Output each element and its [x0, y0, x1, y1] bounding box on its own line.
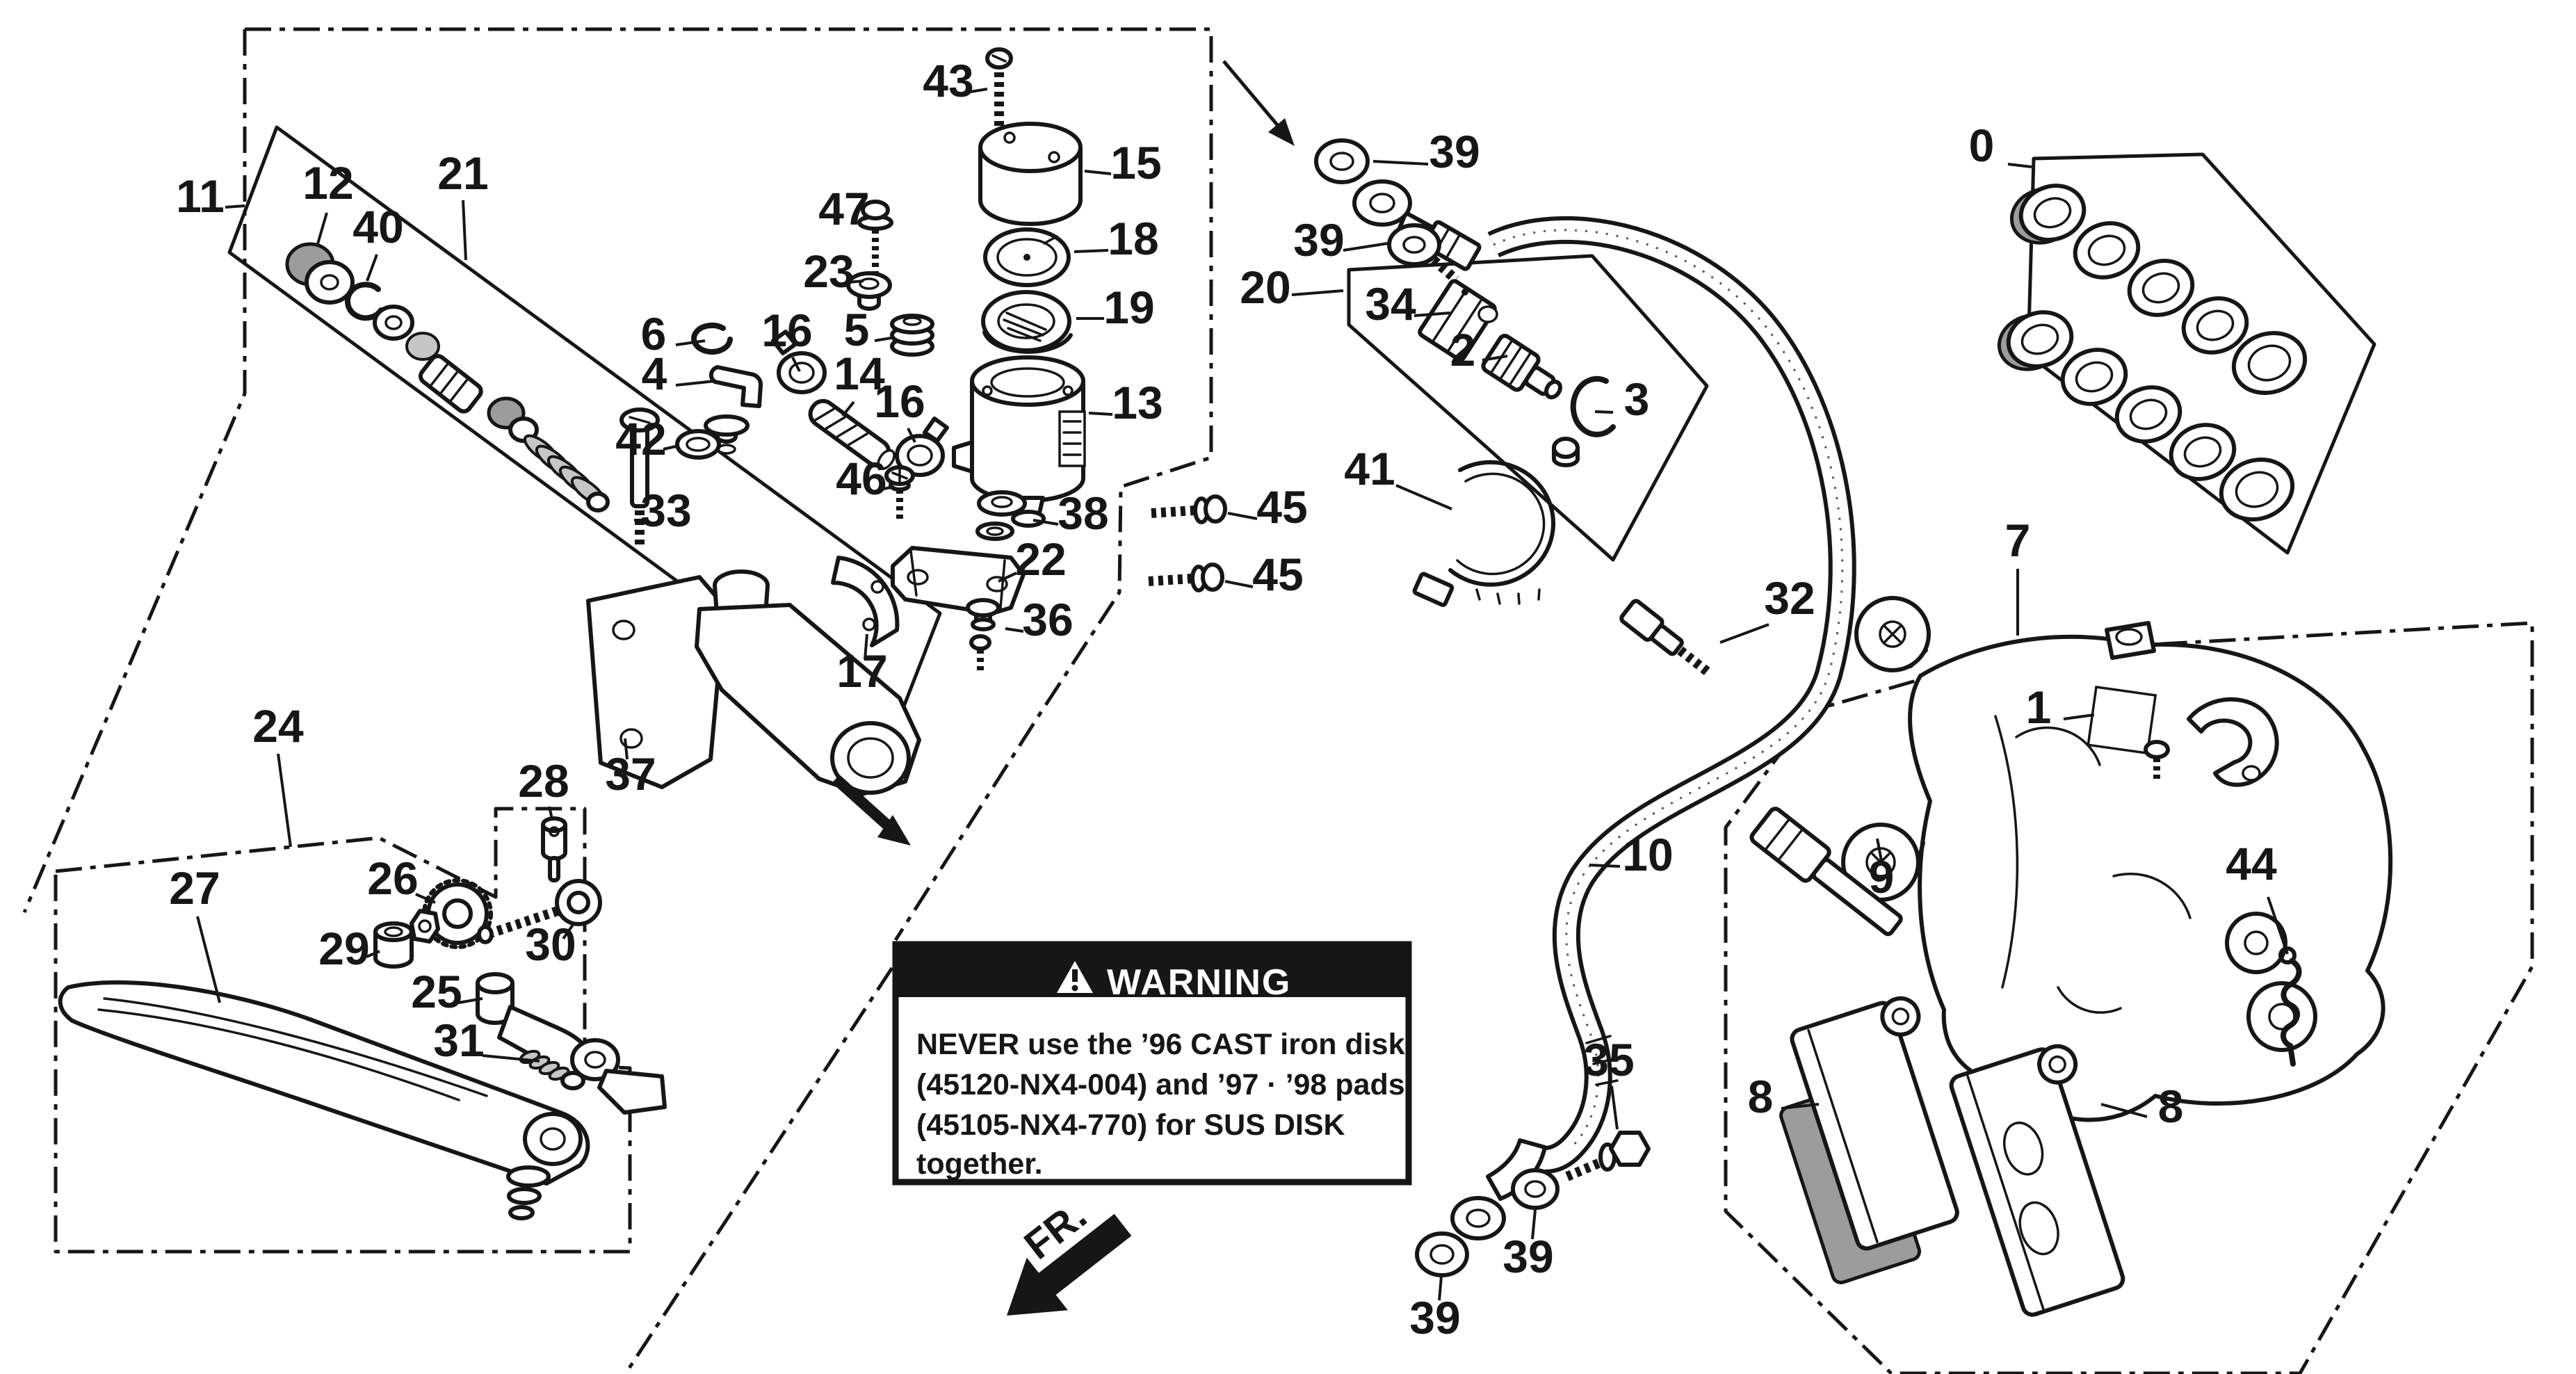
mount-grommet-36	[968, 600, 998, 670]
parts-diagram-page: WARNING NEVER use the ’96 CAST iron disk…	[0, 0, 2576, 1374]
master-piston	[418, 353, 484, 414]
part-label-47: 47	[818, 183, 869, 234]
reservoir-bracket-22	[893, 548, 1023, 613]
part-label-30: 30	[525, 919, 576, 970]
hose-pointer-line	[1224, 61, 1286, 136]
part-label-25: 25	[411, 966, 462, 1017]
seal-kit-0	[1992, 178, 2312, 528]
mount-bolt-45a	[1151, 496, 1225, 522]
part-label-1: 1	[2026, 681, 2052, 733]
leader-line-18	[1074, 250, 1108, 252]
half-clamp-17	[833, 558, 897, 645]
part-label-33: 33	[640, 485, 691, 536]
leader-line-6	[676, 341, 705, 345]
part-label-27: 27	[169, 862, 220, 914]
part-label-23: 23	[803, 245, 854, 297]
part-label-46: 46	[836, 453, 886, 504]
leader-line-3	[1595, 412, 1613, 412]
leader-line-45	[1225, 581, 1253, 587]
part-label-10: 10	[1622, 829, 1673, 880]
mount-bolt-32	[1620, 599, 1717, 682]
part-label-2: 2	[1450, 324, 1476, 375]
part-label-8: 8	[1748, 1071, 1774, 1122]
part-label-39: 39	[1409, 1292, 1460, 1343]
leader-line-32	[1720, 624, 1769, 642]
part-label-12: 12	[302, 157, 353, 209]
valve-cap-3	[1554, 379, 1613, 465]
boundary-diagonal-to-fr	[626, 968, 892, 1373]
part-label-6: 6	[641, 308, 667, 359]
part-label-22: 22	[1015, 533, 1066, 585]
part-label-19: 19	[1103, 282, 1154, 333]
part-label-3: 3	[1624, 373, 1650, 425]
part-label-37: 37	[605, 748, 656, 800]
leader-line-5	[875, 338, 891, 341]
leader-line-24	[278, 754, 291, 847]
leader-line-41	[1396, 485, 1452, 509]
part-label-20: 20	[1240, 261, 1290, 313]
part-label-38: 38	[1058, 487, 1108, 539]
warning-line-3: (45105-NX4-770) for SUS DISK	[916, 1108, 1345, 1142]
banjo-eye	[1354, 181, 1410, 225]
o-ring-42	[677, 431, 719, 458]
bleed-valve-2	[1481, 334, 1569, 410]
pushrod-28	[543, 818, 565, 880]
piston-kit-parts-21	[287, 244, 608, 510]
snap-ring-6	[694, 325, 730, 352]
leader-line-39	[1343, 243, 1388, 250]
warning-line-1: NEVER use the ’96 CAST iron disk	[916, 1028, 1405, 1061]
reservoir-cap-15	[980, 124, 1080, 224]
leader-line-20	[1292, 291, 1343, 295]
leader-line-13	[1089, 413, 1112, 414]
part-label-32: 32	[1764, 572, 1815, 624]
part-label-39: 39	[1429, 126, 1480, 177]
leader-line-11	[225, 206, 245, 207]
exploded-parts-diagram: WARNING NEVER use the ’96 CAST iron disk…	[0, 0, 2576, 1374]
part-label-45: 45	[1252, 549, 1303, 600]
part-label-36: 36	[1022, 594, 1073, 645]
hose-clamp-41	[1413, 462, 1553, 606]
part-label-18: 18	[1108, 213, 1158, 264]
bushing-5	[892, 316, 932, 355]
part-label-39: 39	[1293, 214, 1344, 266]
part-label-41: 41	[1344, 443, 1395, 494]
part-label-8: 8	[2158, 1081, 2184, 1132]
part-label-9: 9	[1869, 851, 1895, 903]
leader-line-10	[1589, 865, 1620, 866]
mount-bolt-45b	[1149, 565, 1222, 590]
leader-line-36	[1005, 629, 1023, 631]
part-label-15: 15	[1110, 137, 1161, 188]
master-cylinder-body-17	[588, 558, 919, 846]
leader-line-45	[1228, 513, 1257, 519]
oil-washer-39c	[1513, 1170, 1557, 1208]
reservoir-diaphragm-19	[983, 292, 1071, 352]
part-label-42: 42	[615, 413, 666, 464]
part-label-40: 40	[353, 201, 403, 252]
oil-washer-39b	[1389, 225, 1439, 264]
part-label-29: 29	[318, 923, 369, 974]
part-label-17: 17	[836, 645, 887, 697]
leader-line-40	[367, 254, 377, 281]
reservoir-set-plate-18	[985, 229, 1069, 285]
leader-line-14	[843, 402, 854, 416]
leader-line-39	[1373, 161, 1428, 164]
part-label-0: 0	[1969, 120, 1995, 171]
leader-line-12	[317, 213, 327, 246]
leader-line-15	[1085, 171, 1111, 174]
part-label-45: 45	[1256, 481, 1307, 533]
part-label-44: 44	[2226, 838, 2277, 889]
hose-pointer-arrowhead-icon	[1268, 118, 1295, 146]
oil-washer-39d	[1417, 1234, 1467, 1275]
leader-line-0	[2008, 164, 2032, 167]
banjo-eye-lower	[1452, 1198, 1504, 1238]
oil-washer-39a	[1316, 140, 1368, 182]
part-label-28: 28	[518, 755, 569, 807]
boundary-master-cylinder-left-11	[24, 29, 245, 912]
part-label-43: 43	[923, 55, 973, 106]
part-label-16: 16	[761, 305, 812, 356]
part-label-13: 13	[1112, 377, 1163, 428]
part-label-39: 39	[1502, 1231, 1553, 1282]
leader-line-21	[463, 200, 466, 260]
part-label-34: 34	[1365, 278, 1416, 330]
leader-line-35	[1612, 1086, 1617, 1129]
part-label-21: 21	[437, 147, 488, 199]
warning-box: WARNING NEVER use the ’96 CAST iron disk…	[896, 944, 1409, 1182]
warning-line-2: (45120-NX4-004) and ’97 · ’98 pads	[916, 1068, 1405, 1101]
reservoir-screw-46	[886, 467, 913, 520]
warning-line-4: together.	[916, 1147, 1043, 1181]
part-label-31: 31	[433, 1015, 484, 1066]
caliper-body-7	[1843, 598, 2390, 1120]
part-label-11: 11	[176, 170, 225, 222]
warning-header: WARNING	[1107, 962, 1291, 1003]
brake-hose-10	[1493, 230, 1842, 1160]
part-label-35: 35	[1583, 1034, 1634, 1085]
part-label-16: 16	[874, 375, 925, 427]
part-label-7: 7	[2005, 515, 2031, 566]
pivot-bushing-29	[375, 923, 412, 967]
part-label-24: 24	[252, 700, 304, 752]
leader-line-4	[676, 381, 715, 385]
part-label-26: 26	[367, 852, 418, 904]
fr-arrow: FR.	[970, 1178, 1144, 1342]
